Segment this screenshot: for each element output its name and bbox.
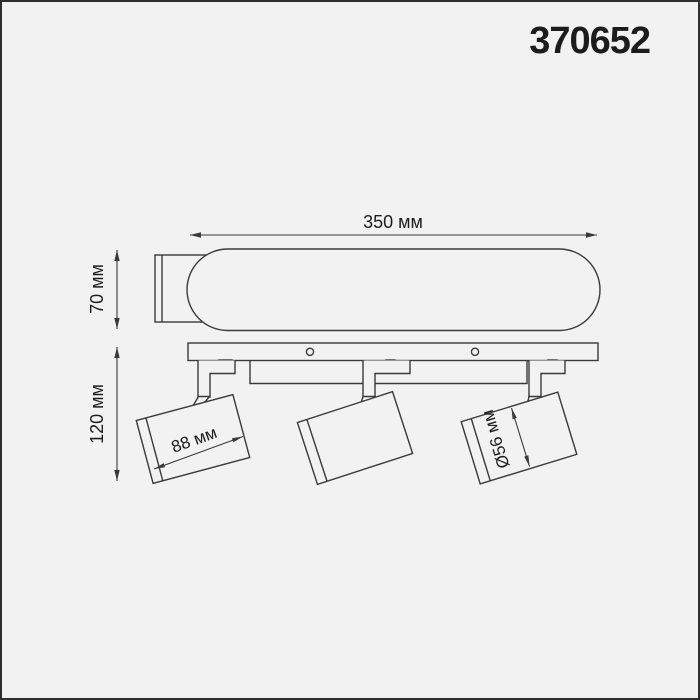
bracket-left	[198, 361, 235, 398]
dimension-width-label: 350 мм	[363, 212, 423, 232]
arrowhead	[586, 232, 597, 237]
screw-hole	[306, 348, 313, 355]
technical-drawing-page: { "product_code": "370652", "dimensions"…	[0, 0, 700, 700]
spotlight-right	[461, 392, 577, 484]
arrowhead	[114, 470, 119, 481]
arrowhead	[114, 250, 119, 261]
dimension-diagram: 350 мм 70 мм 120 мм	[0, 0, 700, 700]
dimension-depth: 120 мм	[87, 347, 120, 481]
screw-hole	[471, 348, 478, 355]
arrowhead	[114, 347, 119, 358]
mounting-plate	[188, 343, 598, 361]
light-bar-body	[187, 249, 600, 331]
dimension-depth-label: 120 мм	[87, 384, 107, 444]
dimension-width: 350 мм	[190, 212, 597, 238]
spotlight-middle	[297, 392, 412, 485]
bracket-middle	[363, 361, 410, 398]
dimension-height: 70 мм	[87, 250, 120, 329]
arrowhead	[114, 318, 119, 329]
arrowhead	[190, 232, 201, 237]
bracket-right	[529, 361, 565, 398]
dimension-height-label: 70 мм	[87, 264, 107, 314]
